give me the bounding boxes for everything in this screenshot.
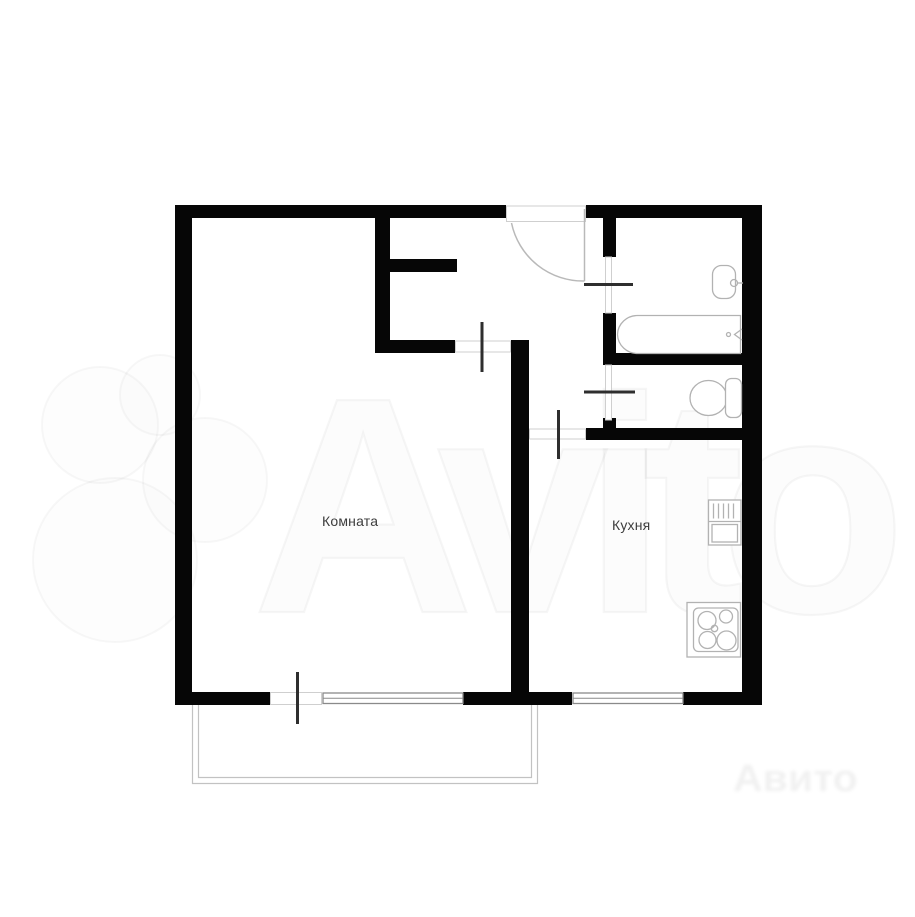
kitchen-fixtures (687, 500, 741, 657)
toilet-bowl-icon (690, 381, 727, 416)
room-label: Комната (322, 513, 378, 529)
floorplan-drawing (0, 0, 915, 917)
outer-wall-right (742, 205, 762, 705)
balcony (193, 705, 538, 784)
outer-wall-top-left (175, 205, 506, 218)
outer-wall-bottom-room-right (463, 692, 572, 705)
avito-watermark-logo (33, 355, 267, 642)
toilet-fixtures (690, 379, 742, 418)
hall-bottom-wall (390, 340, 455, 353)
closet-stub-wall (390, 259, 457, 272)
bathroom-fixtures (618, 266, 744, 354)
bathtub-icon (618, 315, 741, 353)
kitchen-label: Кухня (612, 517, 650, 533)
door-openings (271, 206, 612, 705)
watermark-circle (33, 478, 197, 642)
hall-room-divider-wall (375, 218, 390, 353)
entrance-door-frame (507, 206, 586, 222)
outer-wall-bottom-kitchen (683, 692, 762, 705)
walls (175, 205, 762, 705)
bathroom-west-wall-upper (603, 218, 616, 257)
toilet-tank-icon (726, 379, 742, 418)
outer-wall-top-right (586, 205, 762, 218)
outer-wall-bottom-room-left (192, 692, 270, 705)
outer-wall-left (175, 205, 192, 705)
entrance-door-swing-arc (512, 223, 585, 281)
watermark-circle (42, 367, 158, 483)
room-kitchen-divider-wall (511, 340, 529, 692)
bath-sink-icon (713, 266, 736, 299)
balcony-outer-line (193, 705, 538, 784)
stove-4-burner-icon (687, 603, 741, 658)
floorplan-canvas: Avito (0, 0, 915, 917)
door-leaves (298, 209, 636, 724)
balcony-inner-line (199, 705, 532, 778)
bathroom-toilet-divider-wall (613, 353, 742, 365)
